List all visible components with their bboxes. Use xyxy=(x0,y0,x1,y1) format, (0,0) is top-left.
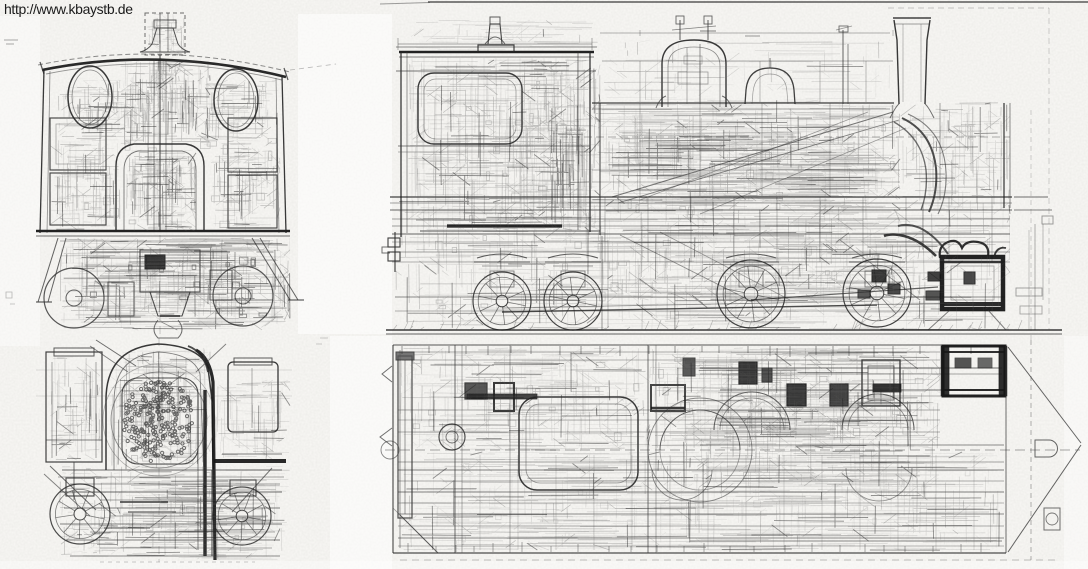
svg-text:http://www.kbaystb.de: http://www.kbaystb.de xyxy=(4,1,133,17)
